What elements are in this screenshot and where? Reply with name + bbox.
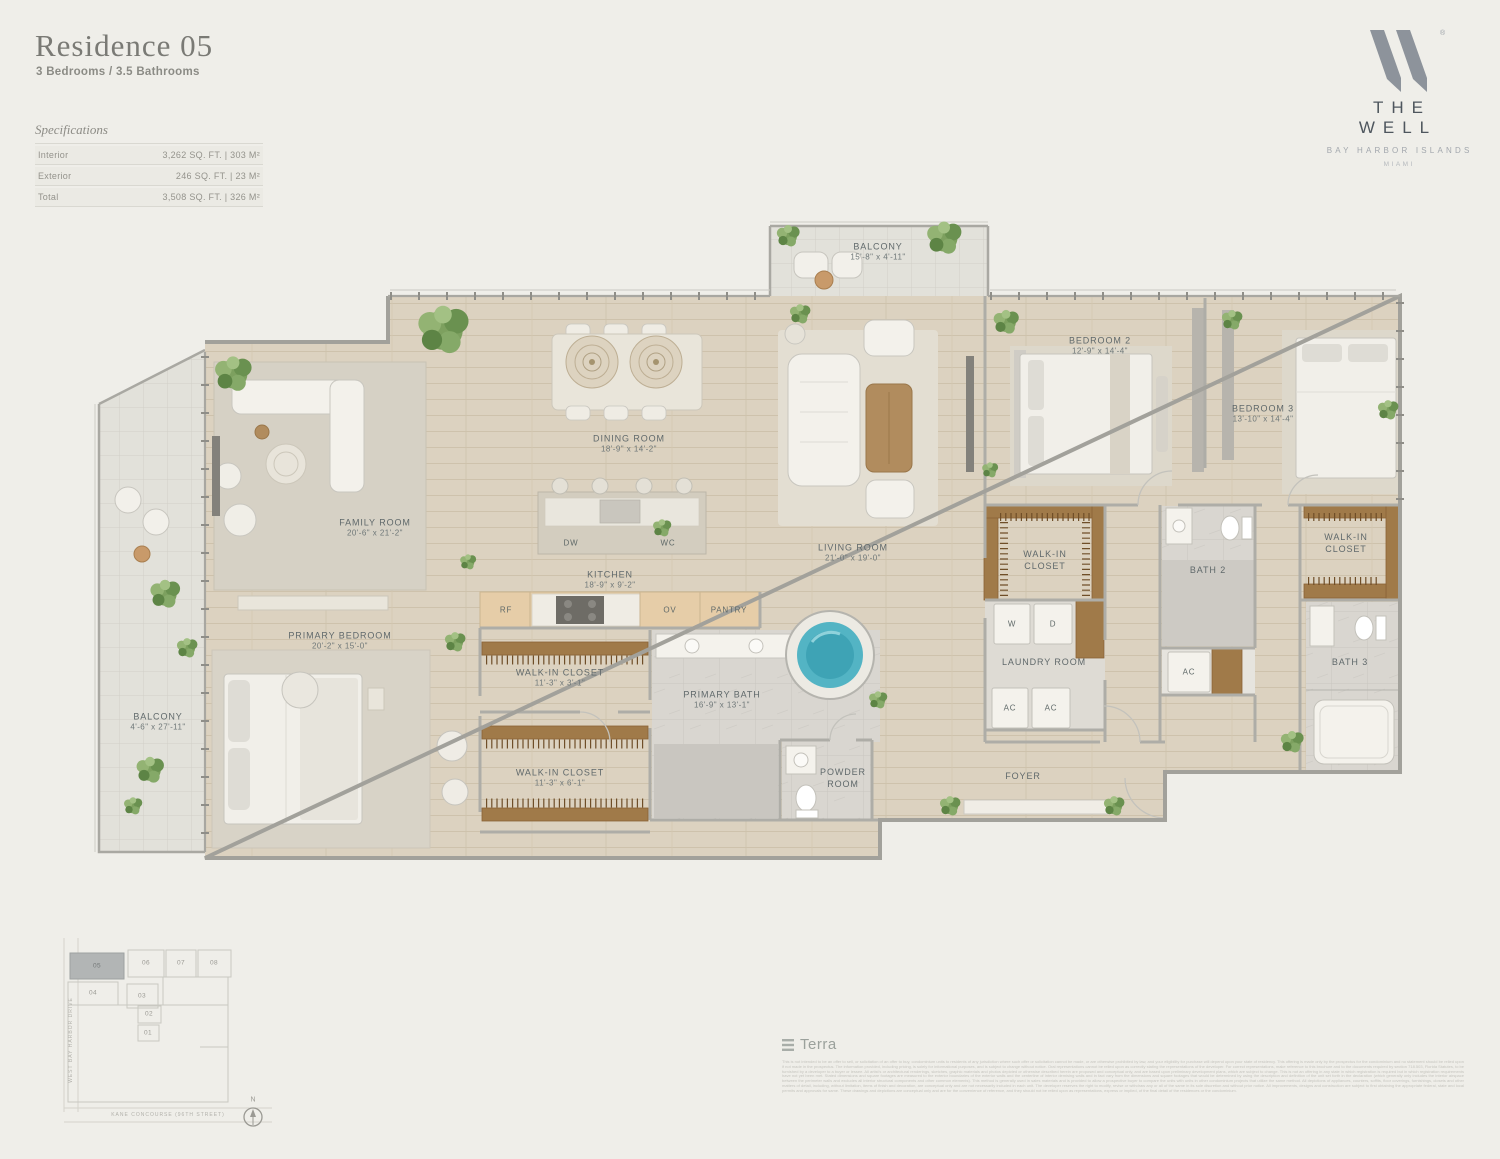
terra-logo-text: Terra — [800, 1036, 837, 1053]
label-ac-3: AC — [1183, 668, 1196, 677]
floorplan-sheet: Residence 05 3 Bedrooms / 3.5 Bathrooms … — [0, 0, 1500, 1159]
room-label-bath3: BATH 3 — [1332, 656, 1368, 668]
room-label-kitchen: KITCHEN 18'-9" x 9'-2" — [584, 569, 635, 592]
room-label-living: LIVING ROOM 21'-0" x 19'-0" — [818, 542, 888, 565]
street-label-west-bay-harbor-drive: WEST BAY HARBOR DRIVE — [68, 997, 74, 1083]
site-unit-label-04: 04 — [89, 990, 97, 997]
room-label-balcony-left: BALCONY 4'-6" x 27'-11" — [130, 711, 185, 734]
street-label-kane-concourse: KANE CONCOURSE (96TH STREET) — [111, 1112, 225, 1118]
terra-logo-icon — [782, 1039, 794, 1051]
room-label-balcony-top: BALCONY 15'-8" x 4'-11" — [850, 241, 905, 264]
site-unit-label-02: 02 — [145, 1011, 153, 1018]
site-unit-label-01: 01 — [144, 1030, 152, 1037]
label-ac-2: AC — [1045, 704, 1058, 713]
site-unit-label-08: 08 — [210, 960, 218, 967]
room-label-dining: DINING ROOM 18'-9" x 14'-2" — [593, 433, 665, 456]
room-label-foyer: FOYER — [1005, 770, 1041, 782]
room-label-walkin-closet-bed2: WALK-IN CLOSET — [1023, 548, 1066, 572]
room-label-laundry: LAUNDRY ROOM — [1002, 656, 1086, 668]
room-label-bedroom2: BEDROOM 2 12'-9" x 14'-4" — [1069, 335, 1131, 358]
label-pantry: PANTRY — [711, 606, 748, 615]
site-unit-label-06: 06 — [142, 960, 150, 967]
room-label-bath2: BATH 2 — [1190, 564, 1226, 576]
floor-plan-graphic — [0, 0, 1500, 1159]
room-label-bedroom3: BEDROOM 3 13'-10" x 14'-4" — [1232, 403, 1294, 426]
foyer-furniture — [964, 800, 1108, 814]
dining-set — [552, 324, 702, 420]
site-unit-label-03: 03 — [138, 993, 146, 1000]
compass-icon — [244, 1108, 262, 1126]
terra-logo: Terra — [782, 1036, 837, 1053]
label-refrigerator: RF — [500, 606, 512, 615]
label-dishwasher: DW — [564, 539, 579, 548]
legal-disclaimer: This is not intended to be an offer to s… — [782, 1060, 1464, 1094]
compass-north-label: N — [250, 1097, 255, 1104]
site-unit-label-07: 07 — [177, 960, 185, 967]
room-label-primary-bath: PRIMARY BATH 16'-9" x 13'-1" — [683, 689, 760, 712]
label-wine-cooler: WC — [661, 539, 676, 548]
label-oven: OV — [663, 606, 676, 615]
label-ac-1: AC — [1004, 704, 1017, 713]
label-washer: W — [1008, 620, 1016, 629]
room-label-powder: POWDER ROOM — [820, 766, 866, 790]
site-unit-label-05: 05 — [93, 963, 101, 970]
room-label-primary-bedroom: PRIMARY BEDROOM 20'-2" x 15'-0" — [288, 630, 391, 653]
room-label-family: FAMILY ROOM 20'-6" x 21'-2" — [339, 517, 411, 540]
room-label-walkin-closet-b: WALK-IN CLOSET 11'-3" x 6'-1" — [516, 767, 604, 790]
label-dryer: D — [1050, 620, 1057, 629]
room-label-walkin-closet-bed3: WALK-IN CLOSET — [1324, 531, 1367, 555]
room-label-walkin-closet-a: WALK-IN CLOSET 11'-3" x 3'-1" — [516, 667, 604, 690]
